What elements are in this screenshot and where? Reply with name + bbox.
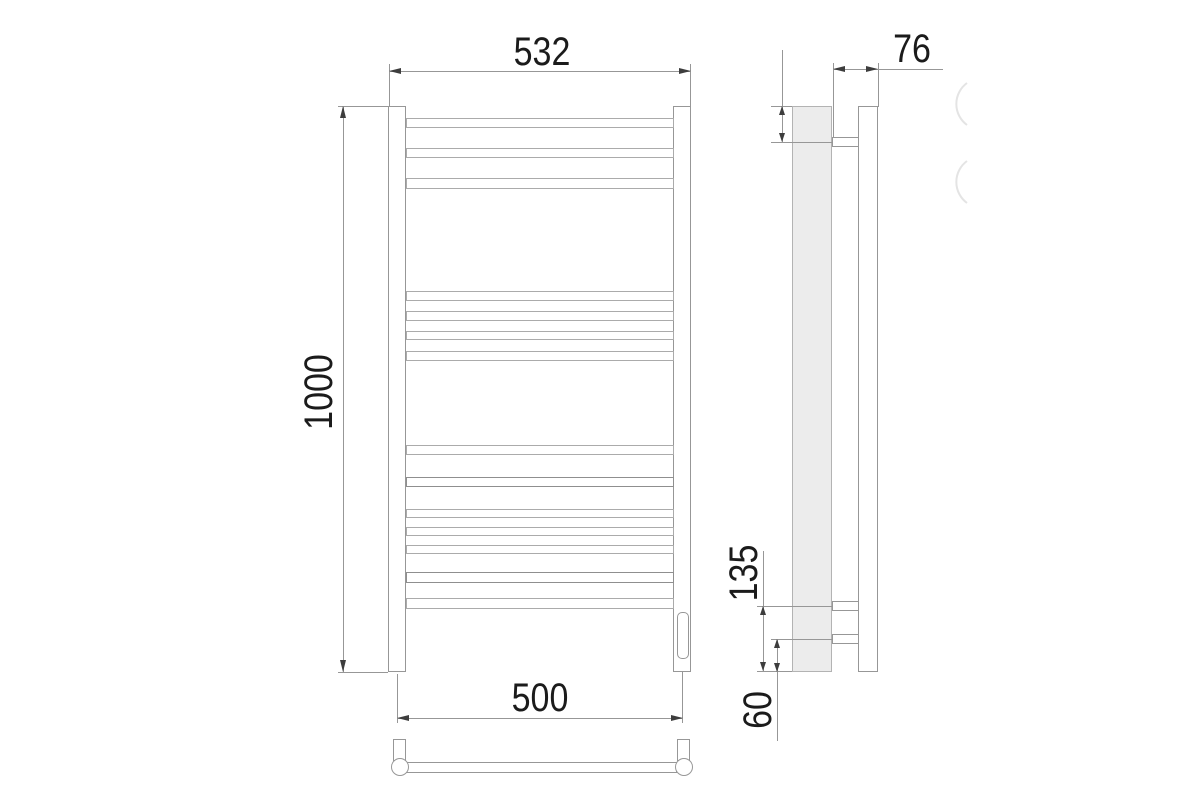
technical-drawing: 532 1000 500 76 bbox=[0, 0, 1200, 800]
towel-rail-rung bbox=[406, 545, 674, 554]
bottom-bracket-upper bbox=[832, 601, 859, 611]
towel-rail-rung bbox=[406, 572, 674, 583]
arrowhead bbox=[774, 639, 780, 648]
dimension-bottom-offset: 60 bbox=[742, 680, 772, 740]
arrowhead bbox=[779, 106, 785, 115]
towel-rail-rung bbox=[406, 311, 674, 321]
arrowhead bbox=[760, 606, 766, 615]
towel-rail-rung bbox=[406, 527, 674, 536]
top-bracket bbox=[832, 137, 859, 147]
arrowhead bbox=[397, 715, 409, 721]
arrowhead bbox=[866, 66, 878, 72]
towel-rail-rung bbox=[406, 148, 674, 158]
dimension-line bbox=[343, 106, 344, 672]
arrowhead bbox=[679, 68, 691, 74]
towel-rail-rung bbox=[406, 351, 674, 361]
extension-line bbox=[771, 639, 832, 640]
right-foot-cap bbox=[675, 758, 693, 776]
bottom-crossbar bbox=[406, 762, 677, 773]
heating-element-housing bbox=[677, 612, 689, 659]
arrowhead bbox=[774, 663, 780, 672]
arrowhead bbox=[779, 133, 785, 142]
towel-rail-rung bbox=[406, 118, 674, 128]
watermark-arcs bbox=[950, 70, 1010, 220]
arrowhead bbox=[389, 68, 401, 74]
dimension-width-bottom: 500 bbox=[509, 682, 570, 712]
dimension-depth: 76 bbox=[887, 33, 936, 65]
extension-line bbox=[833, 63, 834, 137]
left-post bbox=[388, 106, 406, 672]
extension-line bbox=[771, 142, 832, 143]
dimension-height: 1000 bbox=[303, 341, 335, 443]
towel-rail-rung bbox=[406, 598, 674, 609]
arrowhead bbox=[340, 660, 346, 672]
extension-line bbox=[757, 606, 832, 607]
towel-rail-rung bbox=[406, 178, 674, 189]
towel-rail-rung bbox=[406, 477, 674, 487]
arrowhead bbox=[760, 662, 766, 671]
arrowhead bbox=[671, 715, 683, 721]
dimension-width-top: 532 bbox=[511, 36, 572, 68]
bottom-bracket-lower bbox=[832, 634, 859, 644]
dimension-top-offset bbox=[741, 50, 771, 110]
arrowhead bbox=[833, 66, 845, 72]
wall-rail bbox=[858, 106, 878, 672]
dimension-bottom-span: 135 bbox=[728, 522, 758, 624]
left-foot-cap bbox=[391, 758, 409, 776]
right-post bbox=[673, 106, 691, 672]
arrowhead bbox=[340, 106, 346, 118]
towel-rail-rung bbox=[406, 331, 674, 340]
dimension-line bbox=[782, 50, 783, 142]
towel-rail-rung bbox=[406, 291, 674, 301]
rail-profile bbox=[792, 106, 832, 672]
towel-rail-rung bbox=[406, 509, 674, 518]
towel-rail-rung bbox=[406, 445, 674, 455]
extension-line bbox=[338, 672, 388, 673]
